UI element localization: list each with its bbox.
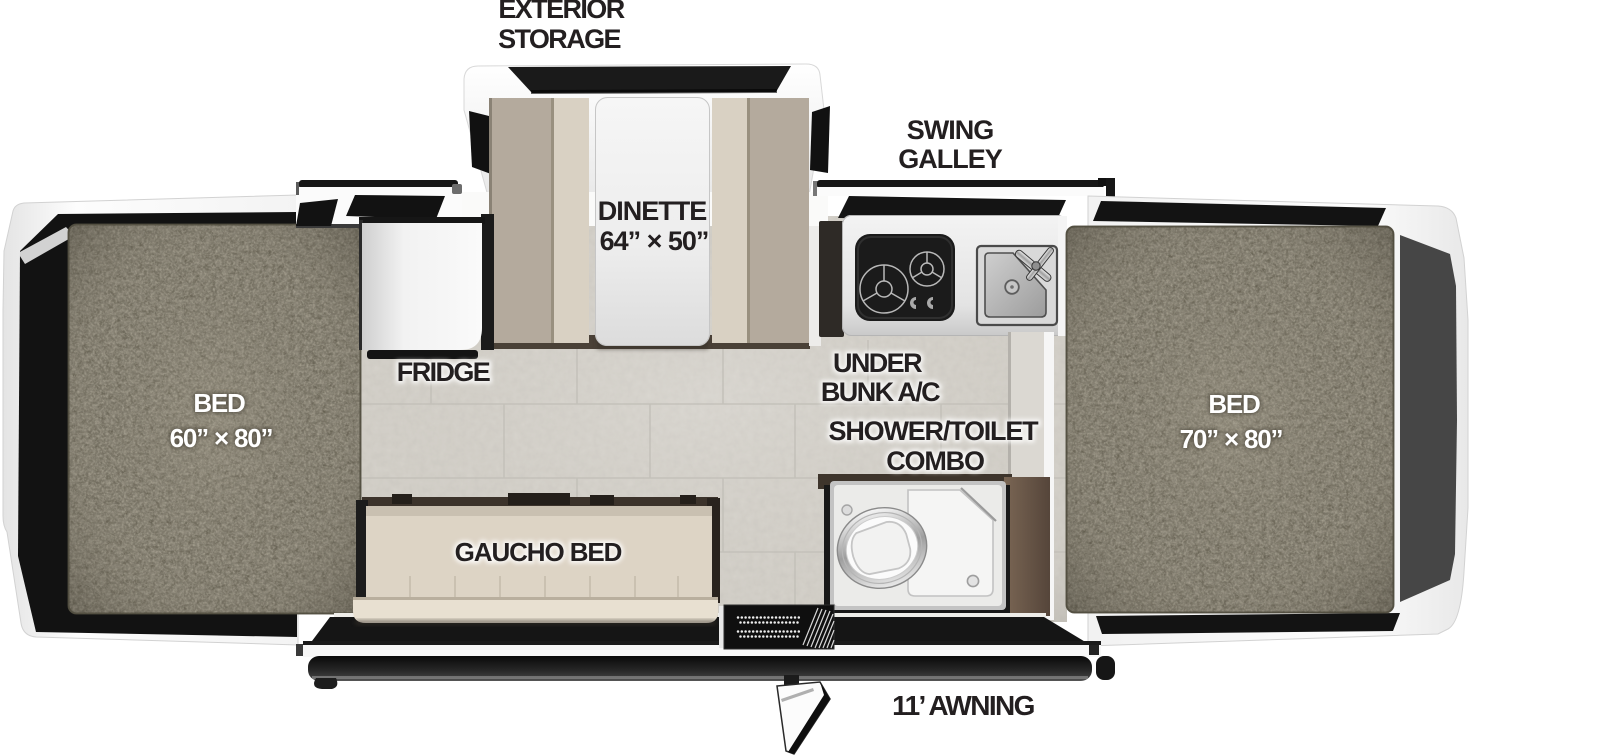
svg-text:70” × 80”: 70” × 80” — [1180, 424, 1283, 454]
svg-text:60” × 80”: 60” × 80” — [170, 423, 273, 453]
svg-text:BUNK A/C: BUNK A/C — [821, 377, 940, 407]
svg-text:GALLEY: GALLEY — [898, 144, 1002, 174]
svg-text:BED: BED — [193, 388, 245, 418]
svg-text:DINETTE: DINETTE — [598, 196, 707, 226]
svg-text:64” × 50”: 64” × 50” — [600, 226, 709, 256]
svg-text:FRIDGE: FRIDGE — [397, 357, 490, 387]
svg-text:UNDER: UNDER — [833, 348, 922, 378]
svg-text:BED: BED — [1208, 389, 1260, 419]
svg-text:STORAGE: STORAGE — [498, 24, 620, 54]
svg-text:SWING: SWING — [907, 115, 994, 145]
svg-text:EXTERIOR: EXTERIOR — [498, 0, 624, 24]
svg-text:COMBO: COMBO — [886, 446, 984, 476]
svg-text:GAUCHO BED: GAUCHO BED — [455, 537, 622, 567]
svg-text:SHOWER/TOILET: SHOWER/TOILET — [829, 416, 1040, 446]
svg-text:11’ AWNING: 11’ AWNING — [892, 690, 1034, 721]
